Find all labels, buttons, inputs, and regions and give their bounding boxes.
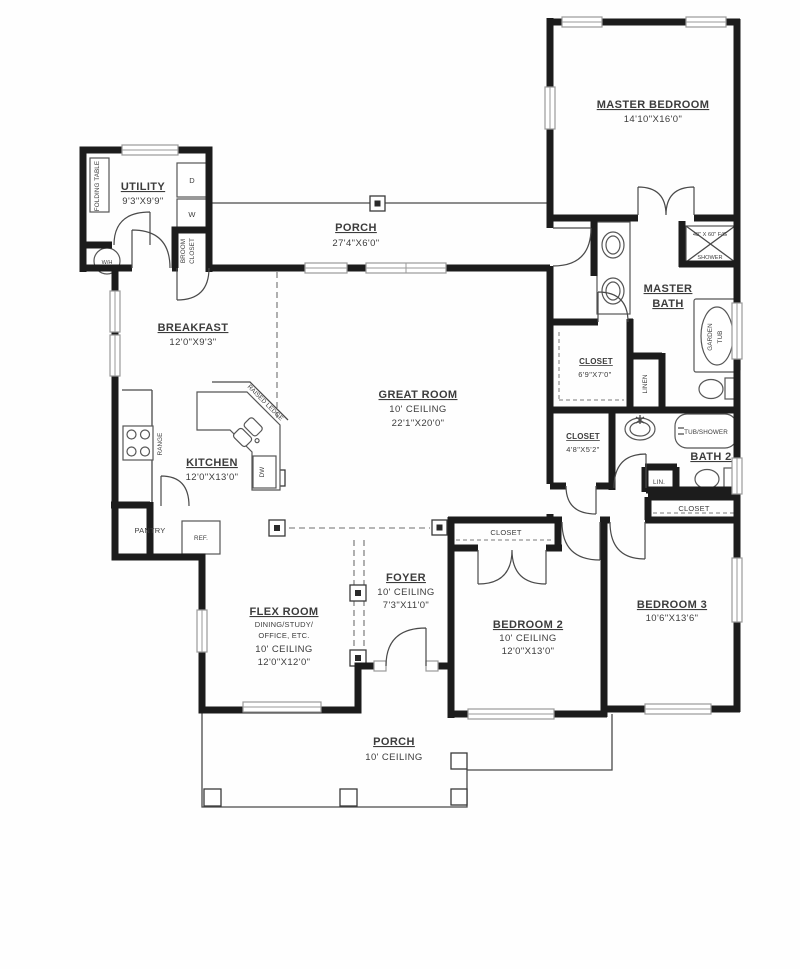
folding-table-label: FOLDING TABLE: [94, 161, 101, 211]
hall-closet-label: CLOSET: [678, 504, 709, 513]
room-ceiling-flex: 10' CEILING: [255, 644, 312, 655]
window-icon: [122, 145, 178, 155]
room-label-closet48: CLOSET: [566, 432, 600, 441]
room-label-flex: FLEX ROOM: [250, 606, 319, 618]
refrigerator-label: REF.: [194, 535, 208, 542]
room-label-master-bedroom: MASTER BEDROOM: [597, 99, 710, 111]
washer-label: W: [188, 210, 196, 219]
window-icon: [468, 709, 554, 719]
porch-post-icon: [451, 753, 467, 769]
shower-label: SHOWER: [697, 255, 722, 261]
room-dims-master-closet: 6'9"X7'0": [578, 370, 611, 379]
broom-closet-label: BROOM: [180, 239, 187, 263]
room-ceiling-front-porch: 10' CEILING: [365, 752, 422, 763]
bedroom3-door: [610, 522, 645, 559]
garden-tub-label: TUB: [717, 331, 724, 344]
dishwasher-label: DW: [259, 467, 266, 478]
room-label-great-room: GREAT ROOM: [379, 389, 458, 401]
window-icon: [110, 335, 120, 376]
room-dims-bedroom2: 12'0"X13'0": [502, 646, 555, 657]
room-dims-closet48: 4'8"X5'2": [566, 445, 599, 454]
room-label-bedroom3: BEDROOM 3: [637, 599, 707, 611]
room-label-master-bath: BATH: [652, 298, 683, 310]
porch-post-icon: [451, 789, 467, 805]
room-label-bedroom2: BEDROOM 2: [493, 619, 563, 631]
toilet-icon: [699, 380, 723, 399]
window-icon: [110, 291, 120, 332]
room-ceiling-bedroom2: 10' CEILING: [499, 633, 556, 644]
master-hall-door: [553, 228, 591, 266]
shower-size-label: 48" X 60" F/G: [693, 232, 727, 238]
bed2-closet-label: CLOSET: [490, 528, 521, 537]
floor-plan-svg: UTILITY 9'3"X9'9" FOLDING TABLE W/H D W …: [0, 0, 800, 969]
lin-label: LIN.: [653, 479, 665, 486]
room-label-rear-porch: PORCH: [335, 222, 377, 234]
room-dims-flex: 12'0"X12'0": [258, 657, 311, 668]
broom-closet-door: [177, 268, 209, 300]
room-dims-master-bedroom: 14'10"X16'0": [624, 114, 683, 125]
room-sub-flex: DINING/STUDY/: [255, 620, 314, 629]
master-closet-shelf: [559, 332, 624, 400]
room-label-utility: UTILITY: [121, 181, 166, 193]
room-ceiling-foyer: 10' CEILING: [377, 587, 434, 598]
window-icon: [545, 87, 555, 129]
window-icon: [732, 303, 742, 359]
bedroom2-door: [562, 522, 600, 560]
room-label-master-closet: CLOSET: [579, 357, 613, 366]
bed2-closet-doors: [478, 550, 546, 584]
window-icon: [305, 263, 347, 273]
room-label-kitchen: KITCHEN: [186, 457, 238, 469]
porch-post-icon: [340, 789, 357, 806]
room-dims-bedroom3: 10'6"X13'6": [646, 613, 699, 624]
range-label: RANGE: [157, 433, 164, 456]
room-ceiling-great-room: 10' CEILING: [389, 404, 446, 415]
porch-post-icon: [204, 789, 221, 806]
room-dims-breakfast: 12'0"X9'3": [169, 337, 216, 348]
room-label-front-porch: PORCH: [373, 736, 415, 748]
dryer-label: D: [189, 176, 195, 185]
room-dims-rear-porch: 27'4"X6'0": [332, 238, 379, 249]
window-icon: [645, 704, 711, 714]
window-icon: [197, 610, 207, 652]
garden-tub-label: GARDEN: [707, 323, 714, 351]
room-dims-foyer: 7'3"X11'0": [383, 600, 429, 611]
tub-shower-label: TUB/SHOWER: [684, 429, 728, 436]
bath2-door: [614, 454, 646, 488]
pantry-label: PANTRY: [135, 526, 166, 535]
sidelight-icon: [426, 661, 438, 671]
room-sub-flex: OFFICE, ETC.: [258, 631, 309, 640]
window-icon: [732, 458, 742, 494]
room-label-master-bath: MASTER: [644, 283, 693, 295]
window-icon: [732, 558, 742, 622]
porch-post-dot: [375, 201, 381, 207]
utility-door: [132, 230, 170, 268]
room-dims-great-room: 22'1"X20'0": [392, 418, 445, 429]
room-dims-utility: 9'3"X9'9": [122, 196, 163, 207]
front-door: [386, 628, 426, 666]
room-dims-kitchen: 12'0"X13'0": [186, 472, 239, 483]
window-icon: [562, 17, 602, 27]
window-icon: [366, 263, 446, 273]
sidelight-icon: [374, 661, 386, 671]
broom-closet-label: CLOSET: [189, 238, 196, 264]
linen-label: LINEN: [642, 374, 649, 393]
toilet-icon: [695, 470, 719, 489]
window-icon: [243, 702, 321, 712]
room-label-bath2: BATH 2: [690, 451, 731, 463]
master-double-door: [638, 187, 694, 215]
window-icon: [686, 17, 726, 27]
floor-plan-page: UTILITY 9'3"X9'9" FOLDING TABLE W/H D W …: [0, 0, 800, 969]
water-heater-label: W/H: [102, 260, 113, 266]
closet48-door: [566, 486, 596, 514]
room-label-foyer: FOYER: [386, 572, 426, 584]
left-exterior-wall: [115, 265, 374, 710]
room-label-breakfast: BREAKFAST: [158, 322, 229, 334]
